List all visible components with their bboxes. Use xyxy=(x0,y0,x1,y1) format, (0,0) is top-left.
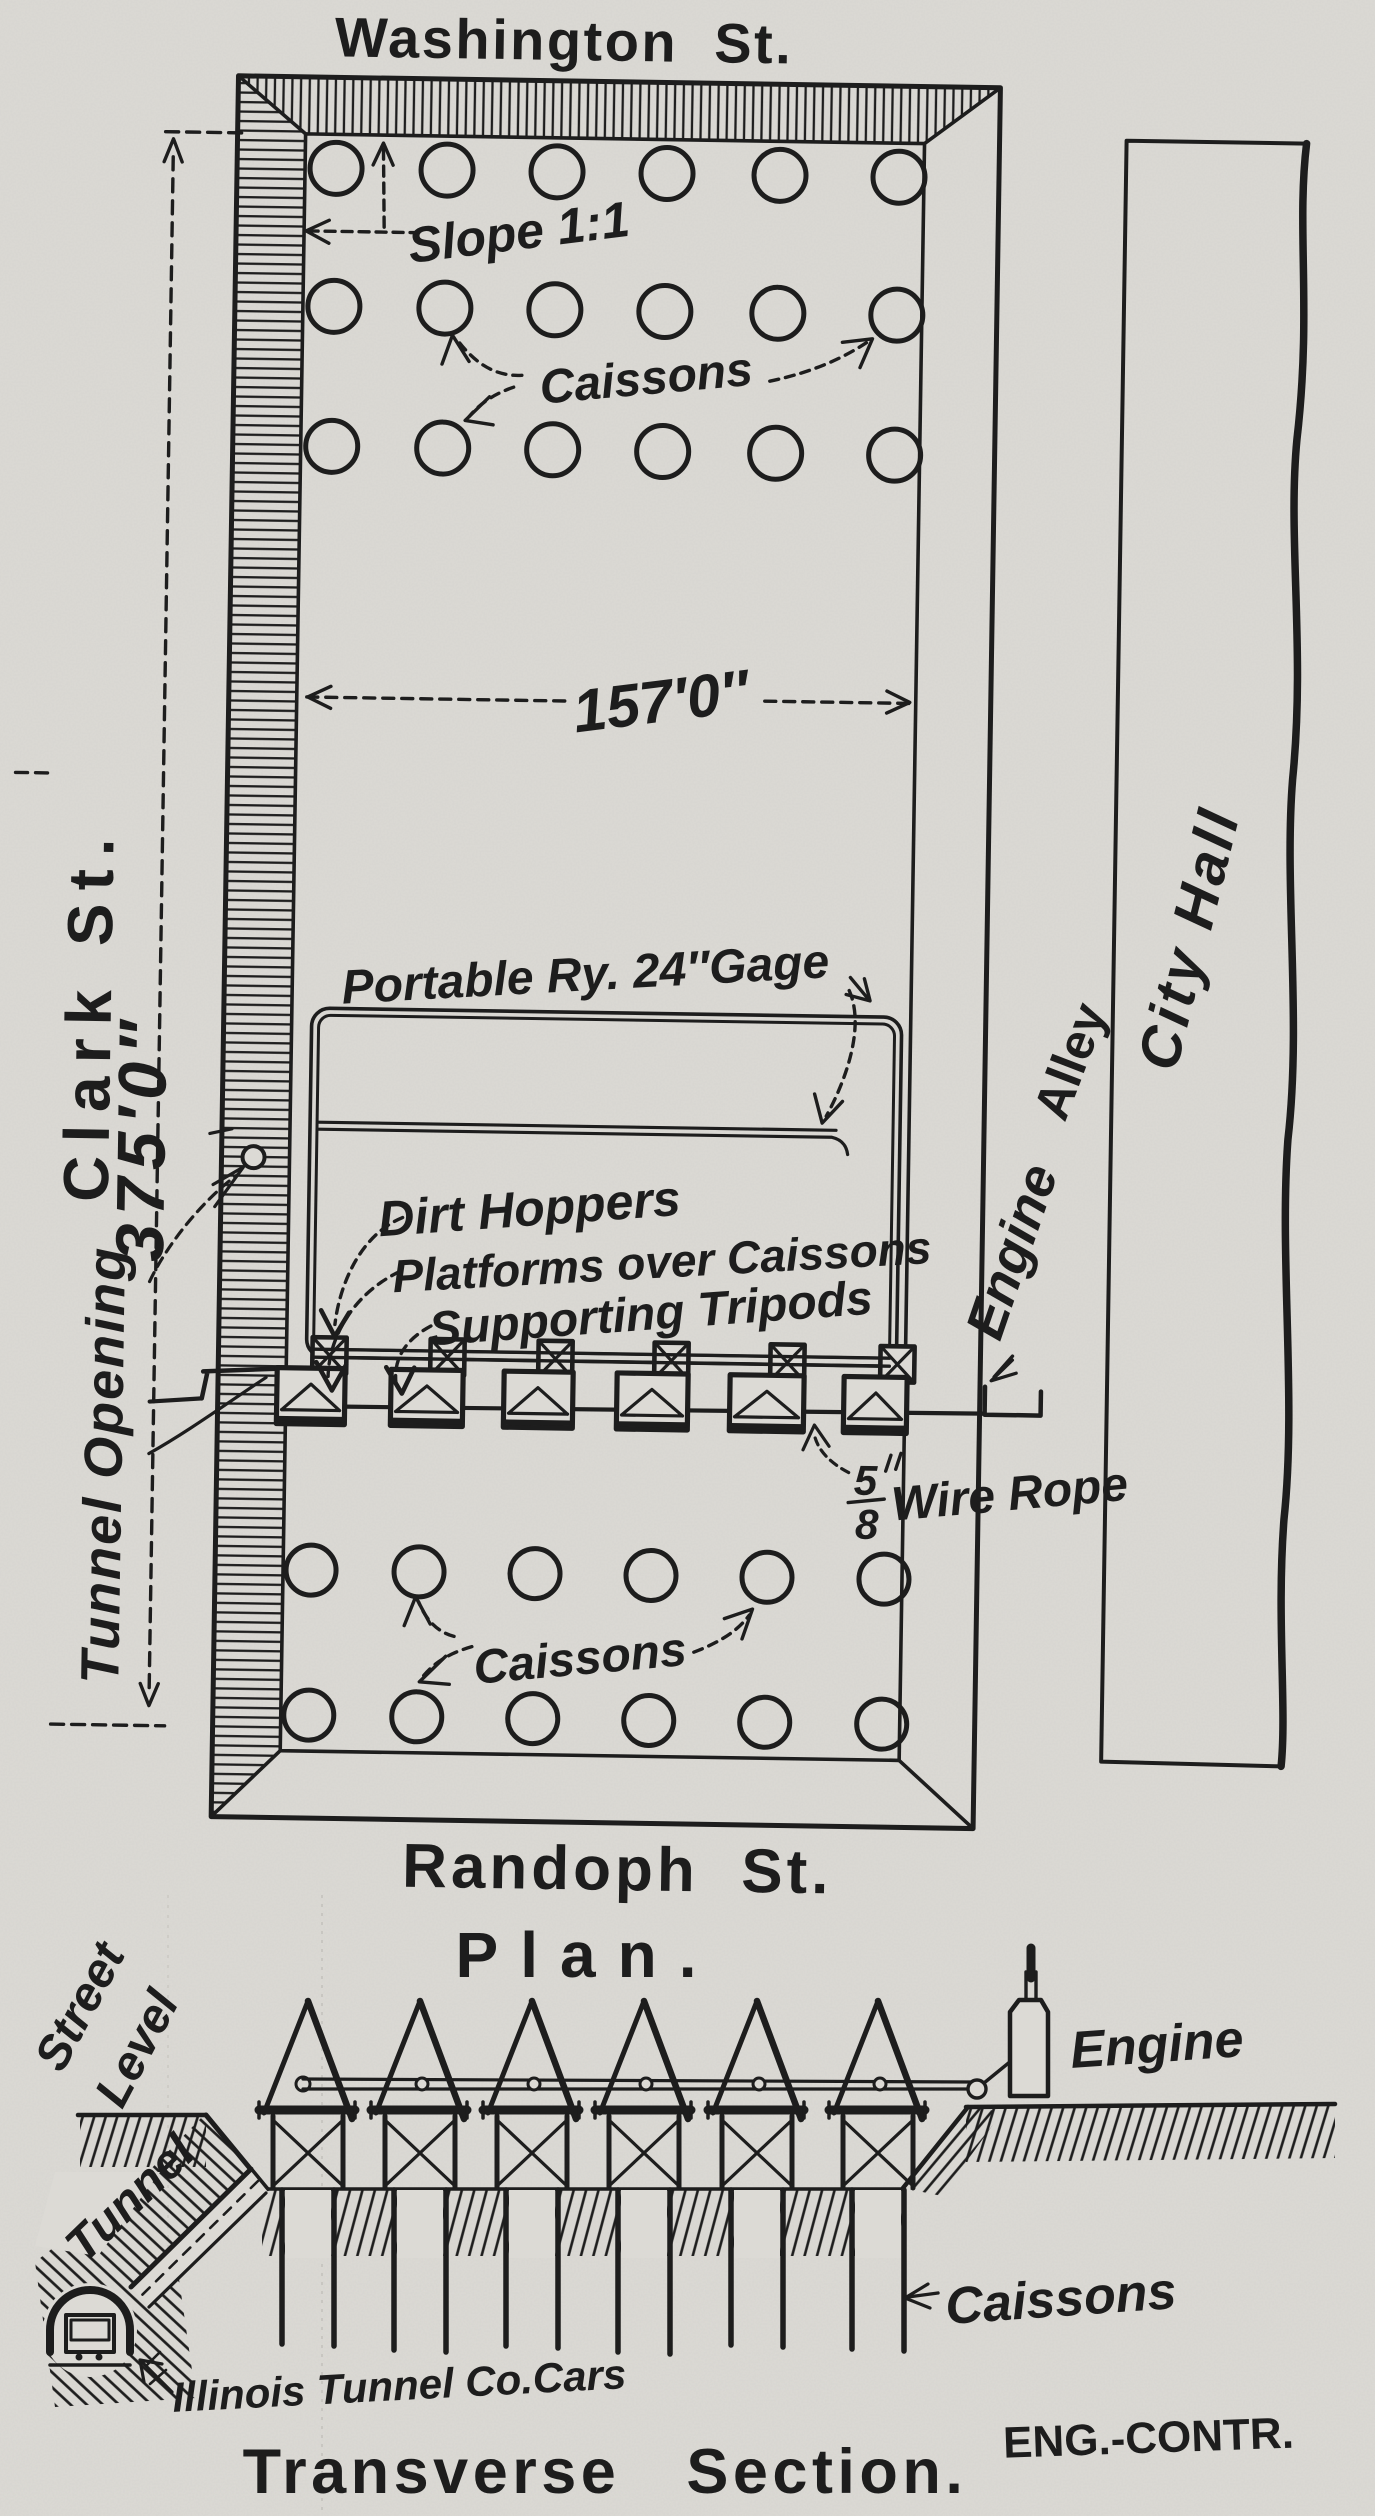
svg-text:Plan.: Plan. xyxy=(456,1919,719,1991)
svg-text:Transverse Section.: Transverse Section. xyxy=(243,2437,968,2507)
svg-text:8: 8 xyxy=(855,1501,880,1548)
svg-text:Engine: Engine xyxy=(1068,2010,1245,2080)
svg-text:ENG.-CONTR.: ENG.-CONTR. xyxy=(1002,2409,1294,2468)
svg-text:Washington St.: Washington St. xyxy=(334,5,793,75)
svg-text:Randoph St.: Randoph St. xyxy=(402,1832,833,1908)
svg-text:375′0″: 375′0″ xyxy=(102,1013,182,1262)
svg-text:Tunnel Opening: Tunnel Opening xyxy=(70,1245,137,1684)
svg-text:5: 5 xyxy=(853,1457,878,1504)
